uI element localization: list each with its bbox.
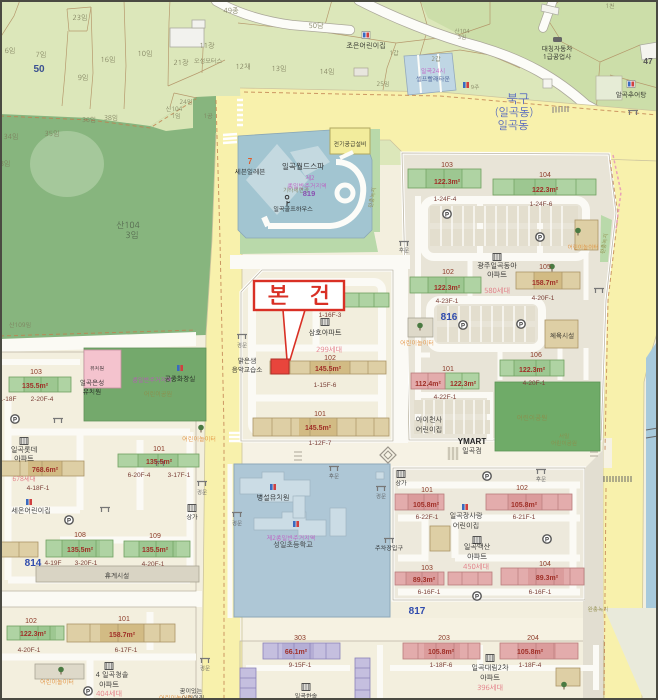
- svg-text:158.7m²: 158.7m²: [532, 280, 559, 287]
- svg-text:3-20F-1: 3-20F-1: [75, 560, 98, 567]
- svg-text:4-22F-1: 4-22F-1: [434, 394, 457, 401]
- svg-text:135.5m²: 135.5m²: [142, 547, 169, 554]
- svg-text:6-16F-1: 6-16F-1: [529, 589, 552, 596]
- svg-text:1-15F-6: 1-15F-6: [314, 382, 337, 389]
- svg-text:105: 105: [539, 264, 551, 271]
- svg-text:122.3m²: 122.3m²: [434, 179, 461, 186]
- svg-text:105.8m²: 105.8m²: [511, 502, 538, 509]
- svg-text:109: 109: [149, 533, 161, 540]
- svg-text:4-20F-1: 4-20F-1: [523, 380, 546, 387]
- svg-text:112.4m²: 112.4m²: [415, 381, 441, 388]
- svg-text:103: 103: [30, 369, 42, 376]
- svg-text:6-20F-4: 6-20F-4: [128, 472, 151, 479]
- svg-text:108: 108: [74, 532, 86, 539]
- svg-text:122.3m²: 122.3m²: [434, 285, 461, 292]
- svg-text:1-24F-6: 1-24F-6: [530, 201, 553, 208]
- svg-text:YMART: YMART: [458, 437, 487, 446]
- svg-text:814: 814: [25, 558, 42, 569]
- svg-text:102: 102: [442, 269, 454, 276]
- svg-text:104: 104: [539, 172, 551, 179]
- svg-text:145.5m²: 145.5m²: [315, 366, 342, 373]
- svg-text:6-17F-1: 6-17F-1: [115, 647, 138, 654]
- svg-text:158.7m²: 158.7m²: [109, 632, 136, 639]
- svg-text:145.5m²: 145.5m²: [305, 425, 332, 432]
- svg-text:4-23F-1: 4-23F-1: [436, 298, 459, 305]
- svg-text:47: 47: [643, 56, 653, 66]
- svg-text:819: 819: [303, 189, 316, 198]
- svg-text:101: 101: [421, 487, 433, 494]
- svg-text:122.3m²: 122.3m²: [519, 367, 546, 374]
- svg-text:135.5m²: 135.5m²: [67, 547, 94, 554]
- svg-text:3-17F-1: 3-17F-1: [168, 472, 191, 479]
- svg-text:1-16F-3: 1-16F-3: [319, 312, 342, 319]
- svg-text:135.5m²: 135.5m²: [22, 383, 49, 390]
- svg-text:1-18F: 1-18F: [0, 396, 17, 403]
- svg-text:66.1m²: 66.1m²: [285, 649, 308, 656]
- svg-text:7: 7: [248, 157, 253, 166]
- svg-text:102: 102: [516, 485, 528, 492]
- svg-text:4-20F-1: 4-20F-1: [532, 295, 555, 302]
- svg-text:1-24F-4: 1-24F-4: [434, 196, 457, 203]
- svg-text:2-20F-4: 2-20F-4: [31, 396, 54, 403]
- svg-text:89.3m²: 89.3m²: [536, 575, 559, 582]
- svg-text:106: 106: [530, 352, 542, 359]
- svg-text:303: 303: [294, 635, 306, 642]
- svg-text:102: 102: [324, 355, 336, 362]
- svg-text:768.6m²: 768.6m²: [32, 467, 59, 474]
- svg-text:50: 50: [33, 64, 45, 75]
- svg-text:4-20F-1: 4-20F-1: [18, 647, 41, 654]
- svg-text:1-12F-7: 1-12F-7: [309, 440, 332, 447]
- svg-text:135.5m²: 135.5m²: [146, 459, 173, 466]
- svg-text:103: 103: [421, 565, 433, 572]
- svg-text:817: 817: [409, 606, 426, 617]
- svg-text:101: 101: [442, 366, 454, 373]
- svg-text:4-20F-1: 4-20F-1: [142, 561, 165, 568]
- svg-text:122.3m²: 122.3m²: [532, 187, 559, 194]
- svg-text:203: 203: [438, 635, 450, 642]
- svg-text:816: 816: [441, 312, 458, 323]
- svg-text:6-21F-1: 6-21F-1: [513, 514, 536, 521]
- svg-text:103: 103: [441, 162, 453, 169]
- svg-text:101: 101: [314, 411, 326, 418]
- svg-text:89.3m²: 89.3m²: [413, 577, 436, 584]
- svg-text:4-18F-1: 4-18F-1: [27, 485, 50, 492]
- svg-text:102: 102: [25, 618, 37, 625]
- svg-text:6-16F-1: 6-16F-1: [418, 589, 441, 596]
- svg-text:122.3m²: 122.3m²: [450, 381, 477, 388]
- svg-text:204: 204: [527, 635, 539, 642]
- svg-text:101: 101: [118, 616, 130, 623]
- svg-text:9-15F-1: 9-15F-1: [289, 662, 312, 669]
- svg-text:105.8m²: 105.8m²: [428, 649, 455, 656]
- svg-text:1-18F-4: 1-18F-4: [519, 662, 542, 669]
- svg-text:1-18F-6: 1-18F-6: [430, 662, 453, 669]
- svg-text:4-19F: 4-19F: [45, 560, 62, 567]
- svg-text:104: 104: [539, 561, 551, 568]
- svg-text:122.3m²: 122.3m²: [20, 631, 47, 638]
- svg-text:105.8m²: 105.8m²: [413, 502, 440, 509]
- svg-text:105.8m²: 105.8m²: [517, 649, 544, 656]
- svg-text:6-22F-1: 6-22F-1: [416, 514, 439, 521]
- svg-text:101: 101: [153, 446, 165, 453]
